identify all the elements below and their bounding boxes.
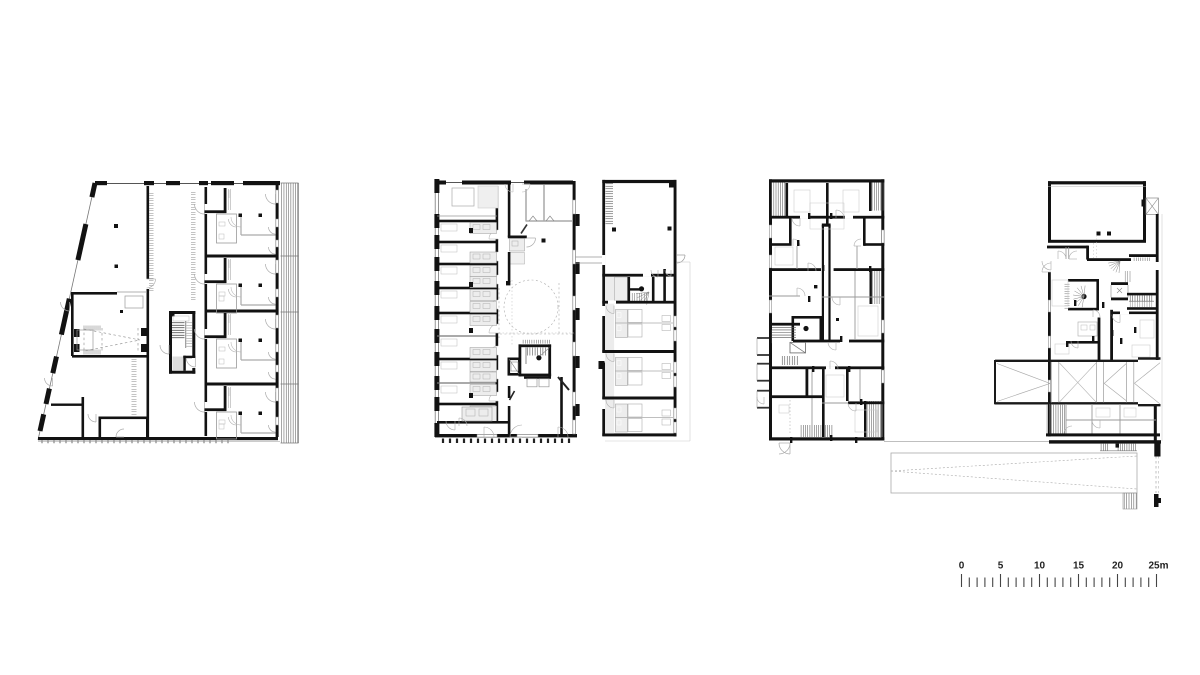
svg-text:25m: 25m: [1148, 561, 1168, 572]
svg-text:20: 20: [1112, 561, 1124, 572]
svg-text:5: 5: [998, 561, 1004, 572]
svg-text:15: 15: [1073, 561, 1085, 572]
svg-text:10: 10: [1034, 561, 1046, 572]
svg-text:0: 0: [959, 561, 965, 572]
